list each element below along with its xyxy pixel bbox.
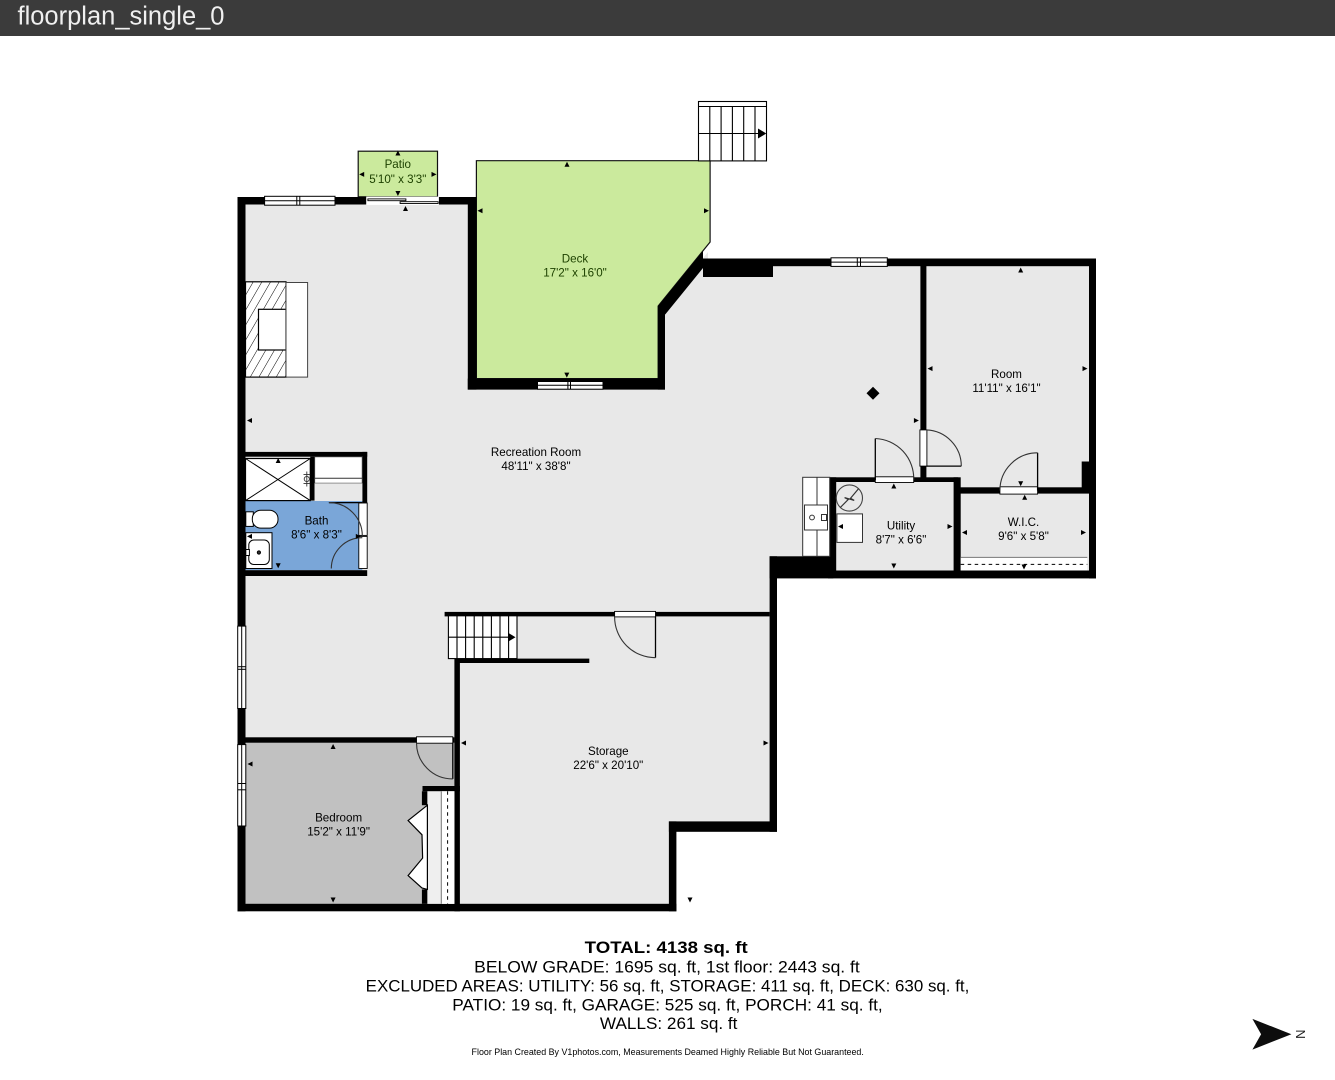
svg-text:15'2" x 11'9": 15'2" x 11'9" (307, 826, 370, 839)
svg-text:Utility: Utility (887, 520, 916, 533)
svg-text:Room: Room (991, 368, 1022, 381)
svg-text:8'6" x 8'3": 8'6" x 8'3" (291, 529, 342, 542)
svg-text:floorplan_single_0: floorplan_single_0 (18, 3, 225, 31)
svg-text:EXCLUDED AREAS: UTILITY: 56 sq: EXCLUDED AREAS: UTILITY: 56 sq. ft, STOR… (366, 977, 970, 996)
svg-text:22'6" x 20'10": 22'6" x 20'10" (573, 759, 643, 772)
svg-text:Recreation Room: Recreation Room (491, 446, 581, 459)
svg-text:TOTAL: 4138 sq. ft: TOTAL: 4138 sq. ft (585, 938, 749, 957)
svg-text:48'11" x 38'8": 48'11" x 38'8" (501, 460, 570, 473)
svg-text:Patio: Patio (385, 158, 411, 171)
svg-text:11'11" x 16'1": 11'11" x 16'1" (972, 382, 1040, 395)
svg-text:PATIO: 19 sq. ft, GARAGE: 525: PATIO: 19 sq. ft, GARAGE: 525 sq. ft, PO… (452, 996, 882, 1015)
svg-text:Floor Plan Created By V1photos: Floor Plan Created By V1photos.com, Meas… (472, 1047, 864, 1058)
svg-text:5'10" x 3'3": 5'10" x 3'3" (369, 173, 426, 186)
svg-text:Deck: Deck (562, 253, 589, 266)
svg-text:8'7" x 6'6": 8'7" x 6'6" (876, 534, 927, 547)
svg-text:N: N (1293, 1030, 1308, 1039)
svg-text:W.I.C.: W.I.C. (1008, 516, 1040, 529)
svg-text:Storage: Storage (588, 745, 629, 758)
svg-text:Bath: Bath (305, 515, 329, 528)
svg-text:BELOW GRADE: 1695 sq. ft, 1st: BELOW GRADE: 1695 sq. ft, 1st floor: 244… (474, 957, 860, 976)
svg-text:17'2" x 16'0": 17'2" x 16'0" (543, 267, 607, 280)
svg-text:WALLS: 261 sq. ft: WALLS: 261 sq. ft (600, 1014, 738, 1033)
svg-text:Bedroom: Bedroom (315, 812, 362, 825)
svg-text:9'6" x 5'8": 9'6" x 5'8" (998, 530, 1049, 543)
